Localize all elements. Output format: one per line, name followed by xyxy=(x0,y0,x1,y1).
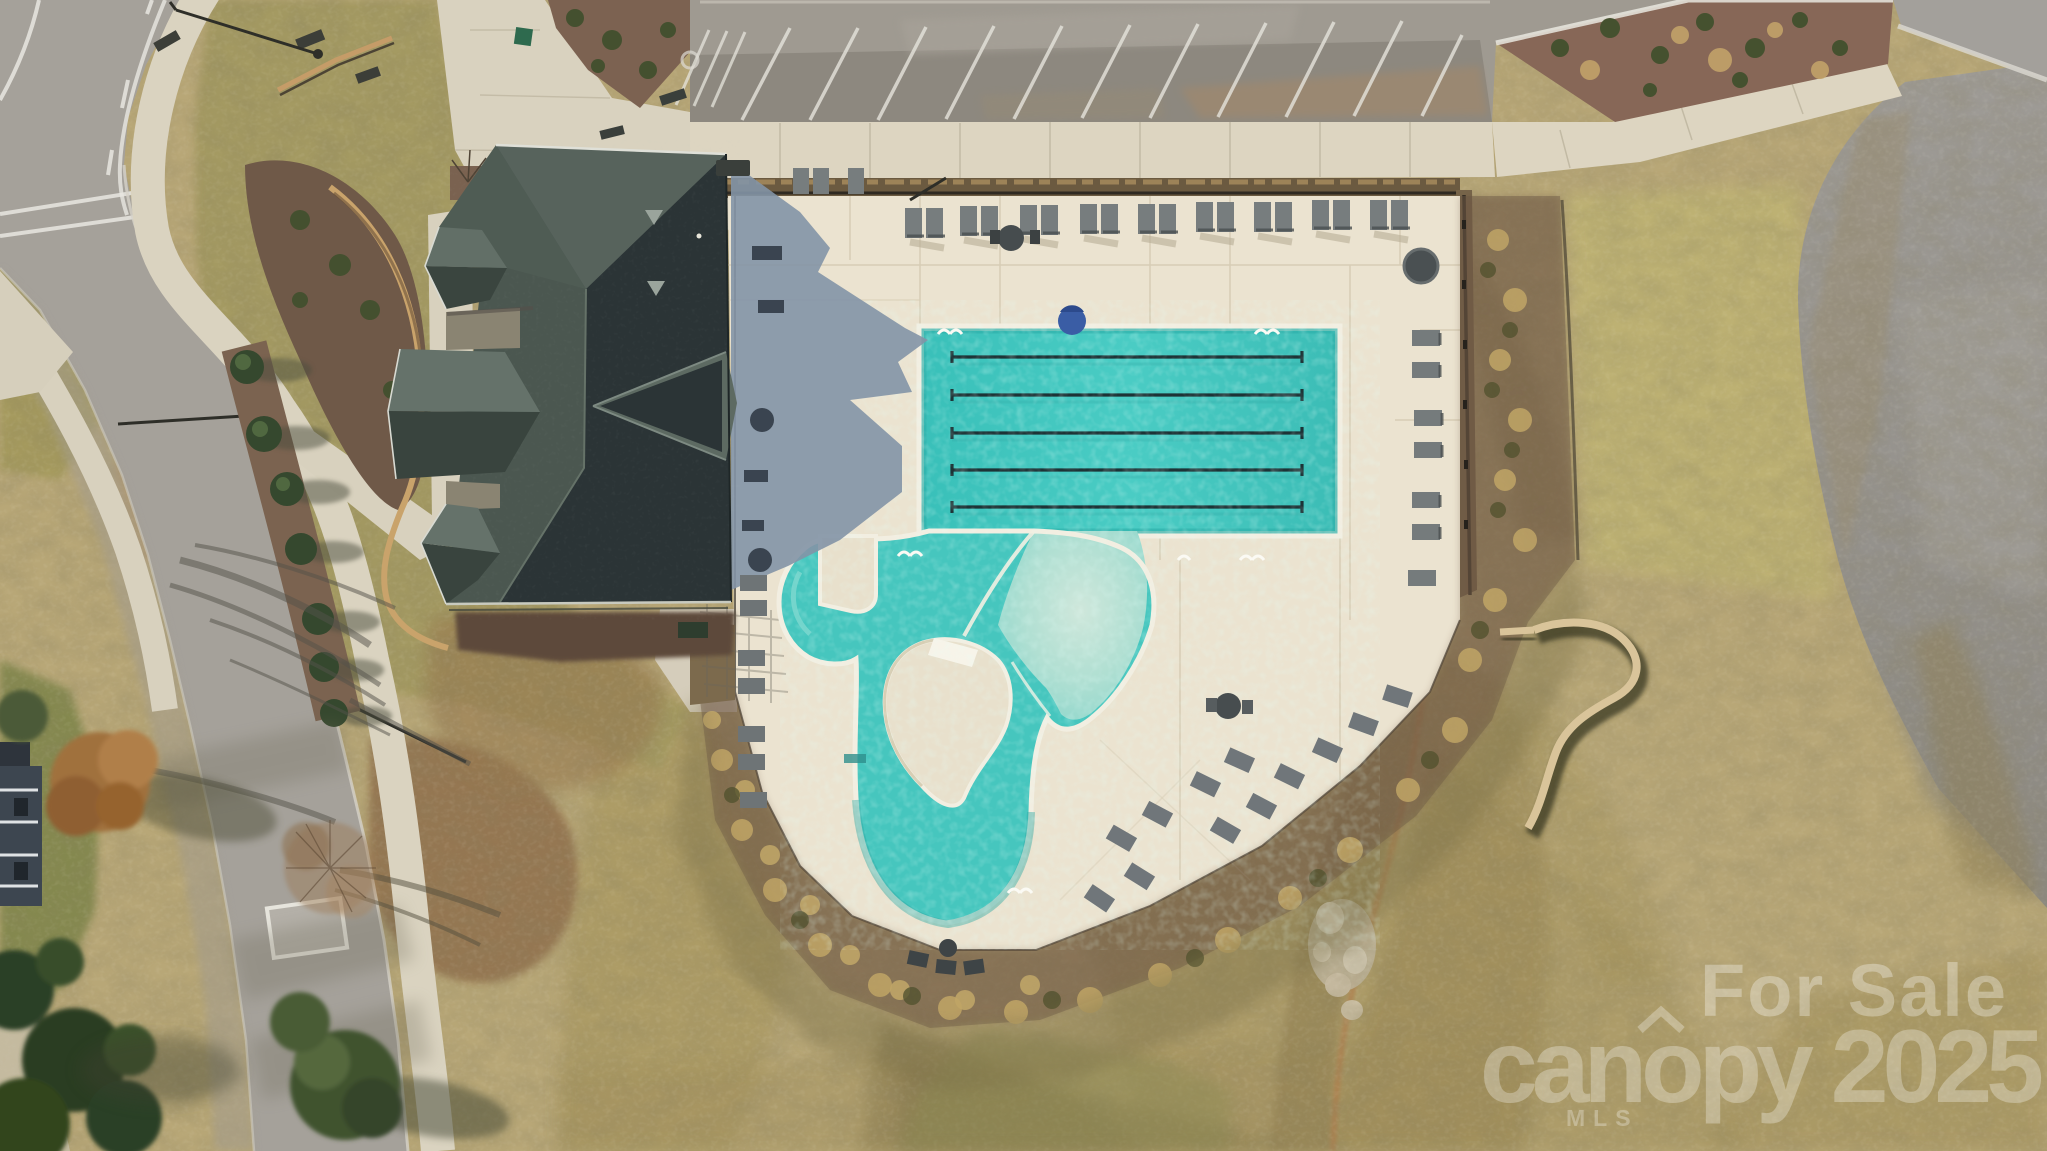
svg-text:canopy 2025: canopy 2025 xyxy=(1480,1009,2042,1125)
svg-text:MLS: MLS xyxy=(1566,1105,1639,1131)
